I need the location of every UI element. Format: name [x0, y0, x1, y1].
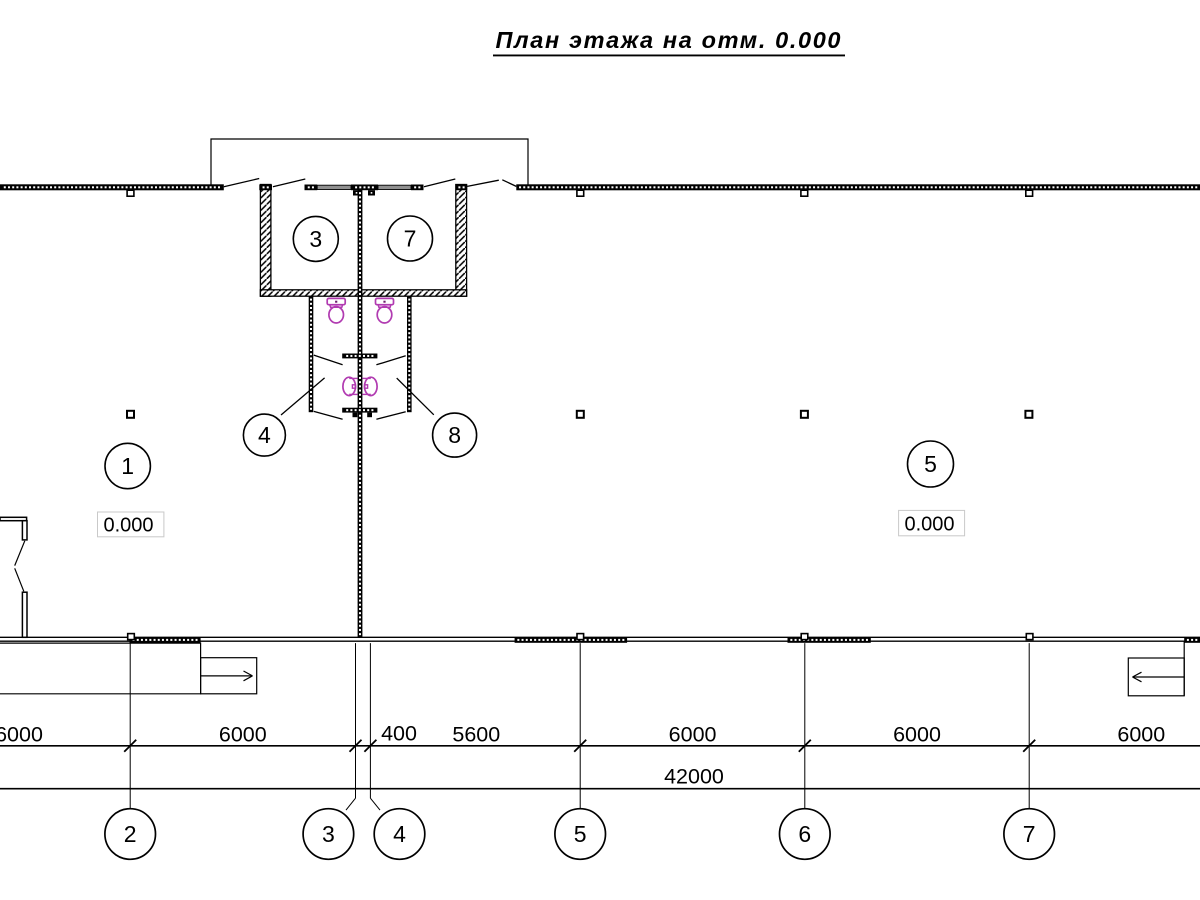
svg-text:1: 1	[121, 453, 134, 479]
svg-text:6000: 6000	[1117, 722, 1165, 746]
svg-text:42000: 42000	[664, 764, 724, 788]
svg-text:3: 3	[322, 821, 335, 847]
svg-text:6000: 6000	[893, 722, 941, 746]
svg-text:5: 5	[574, 821, 587, 847]
svg-text:2: 2	[124, 821, 137, 847]
svg-text:4: 4	[258, 422, 271, 448]
svg-text:7: 7	[1023, 821, 1036, 847]
svg-text:5600: 5600	[452, 722, 500, 746]
svg-text:6000: 6000	[219, 722, 267, 746]
svg-text:0.000: 0.000	[904, 514, 954, 536]
svg-text:План этажа на отм. 0.000: План этажа на отм. 0.000	[496, 27, 841, 53]
svg-text:400: 400	[381, 721, 417, 745]
svg-text:6000: 6000	[669, 722, 717, 746]
svg-text:3: 3	[309, 226, 322, 252]
svg-text:8: 8	[448, 422, 461, 448]
svg-text:0.000: 0.000	[103, 515, 153, 537]
svg-text:6: 6	[798, 821, 811, 847]
svg-text:6000: 6000	[0, 722, 43, 746]
svg-text:5: 5	[924, 451, 937, 477]
svg-text:7: 7	[404, 226, 417, 252]
svg-text:4: 4	[393, 821, 406, 847]
